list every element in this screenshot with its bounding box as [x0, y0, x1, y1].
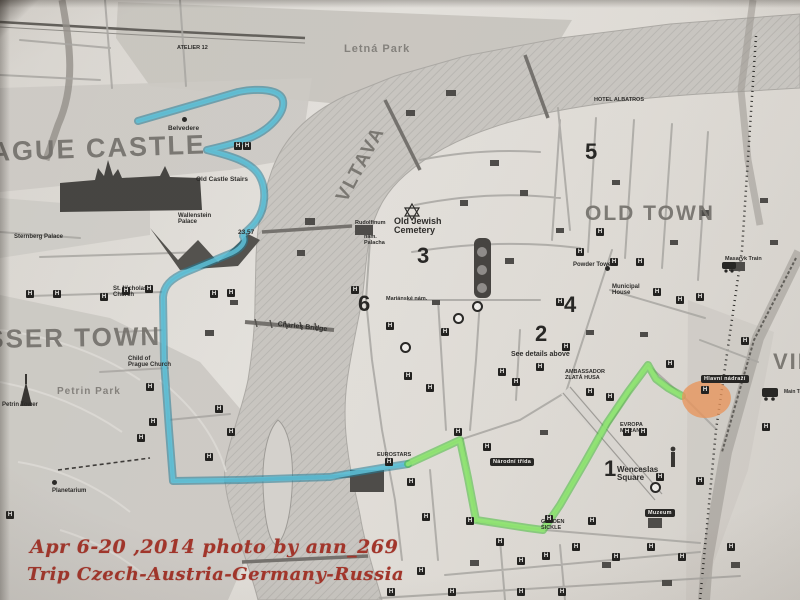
- caption-line-1: Apr 6-20 ,2014 photo by ann_269: [30, 536, 398, 558]
- photo-caption: Apr 6-20 ,2014 photo by ann_269 Trip Cze…: [0, 0, 800, 600]
- photo-of-prague-map: AGUE CASTLESSER TOWNOLD TOWNVLTAVAVINLet…: [0, 0, 800, 600]
- caption-line-2: Trip Czech-Austria-Germany-Russia: [27, 564, 404, 585]
